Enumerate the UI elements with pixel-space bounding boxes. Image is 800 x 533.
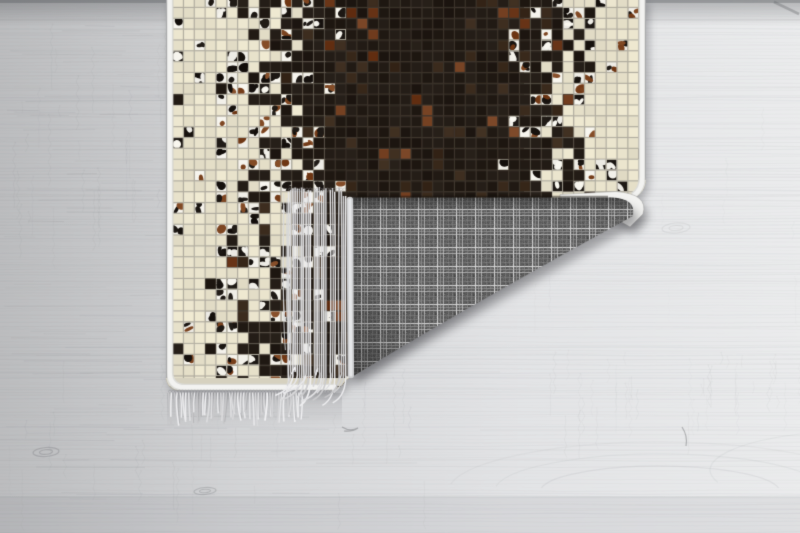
product-photo: Patchwork cowhide-style mosaic rug lying…: [0, 0, 800, 533]
rug-photo-canvas: [0, 0, 800, 533]
